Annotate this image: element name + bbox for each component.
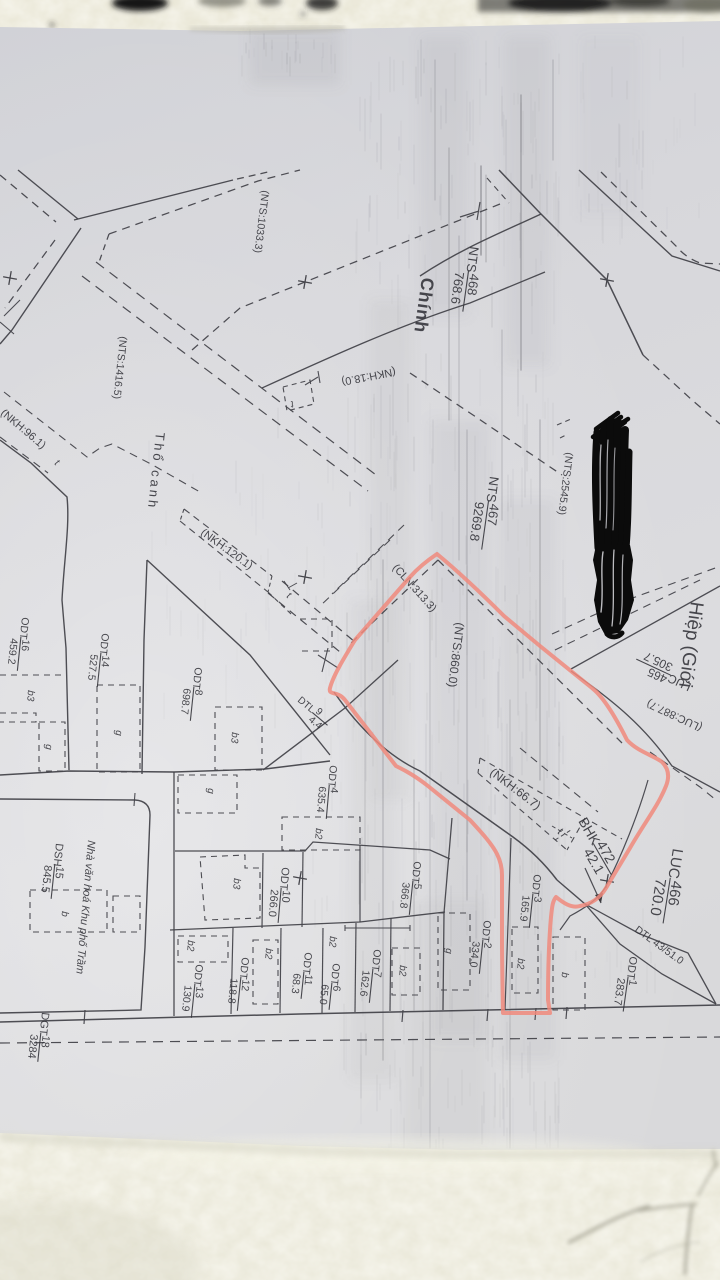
svg-text:ODT: ODT <box>325 765 339 789</box>
svg-text:ODT: ODT <box>190 667 204 691</box>
svg-text:68.3: 68.3 <box>289 973 303 995</box>
svg-text:b3: b3 <box>230 878 242 890</box>
svg-text:ODT: ODT <box>409 861 423 885</box>
svg-text:65.0: 65.0 <box>317 984 331 1006</box>
svg-text:ODT: ODT <box>237 957 251 981</box>
svg-text:b2: b2 <box>514 958 526 970</box>
svg-text:ODT: ODT <box>369 949 383 973</box>
svg-text:b2: b2 <box>326 936 338 948</box>
svg-text:ODT: ODT <box>277 867 291 891</box>
svg-text:b3: b3 <box>24 690 36 702</box>
svg-text:b2: b2 <box>262 948 274 960</box>
svg-text:ODT: ODT <box>191 964 205 988</box>
svg-text:ODT: ODT <box>529 874 543 898</box>
svg-text:b3: b3 <box>228 732 240 744</box>
svg-text:b2: b2 <box>312 828 324 840</box>
svg-text:ODT: ODT <box>328 963 342 987</box>
svg-text:ODT: ODT <box>300 952 314 976</box>
svg-text:ODT: ODT <box>17 617 31 641</box>
svg-text:DSH: DSH <box>51 843 65 867</box>
svg-text:635.4: 635.4 <box>314 786 328 813</box>
svg-text:266.0: 266.0 <box>266 889 280 917</box>
svg-text:3284: 3284 <box>25 1034 39 1060</box>
svg-text:b2: b2 <box>396 965 408 977</box>
svg-text:b2: b2 <box>184 940 196 952</box>
svg-text:ODT: ODT <box>479 920 493 944</box>
svg-text:ODT: ODT <box>97 633 111 657</box>
svg-text:DGT: DGT <box>37 1012 51 1037</box>
